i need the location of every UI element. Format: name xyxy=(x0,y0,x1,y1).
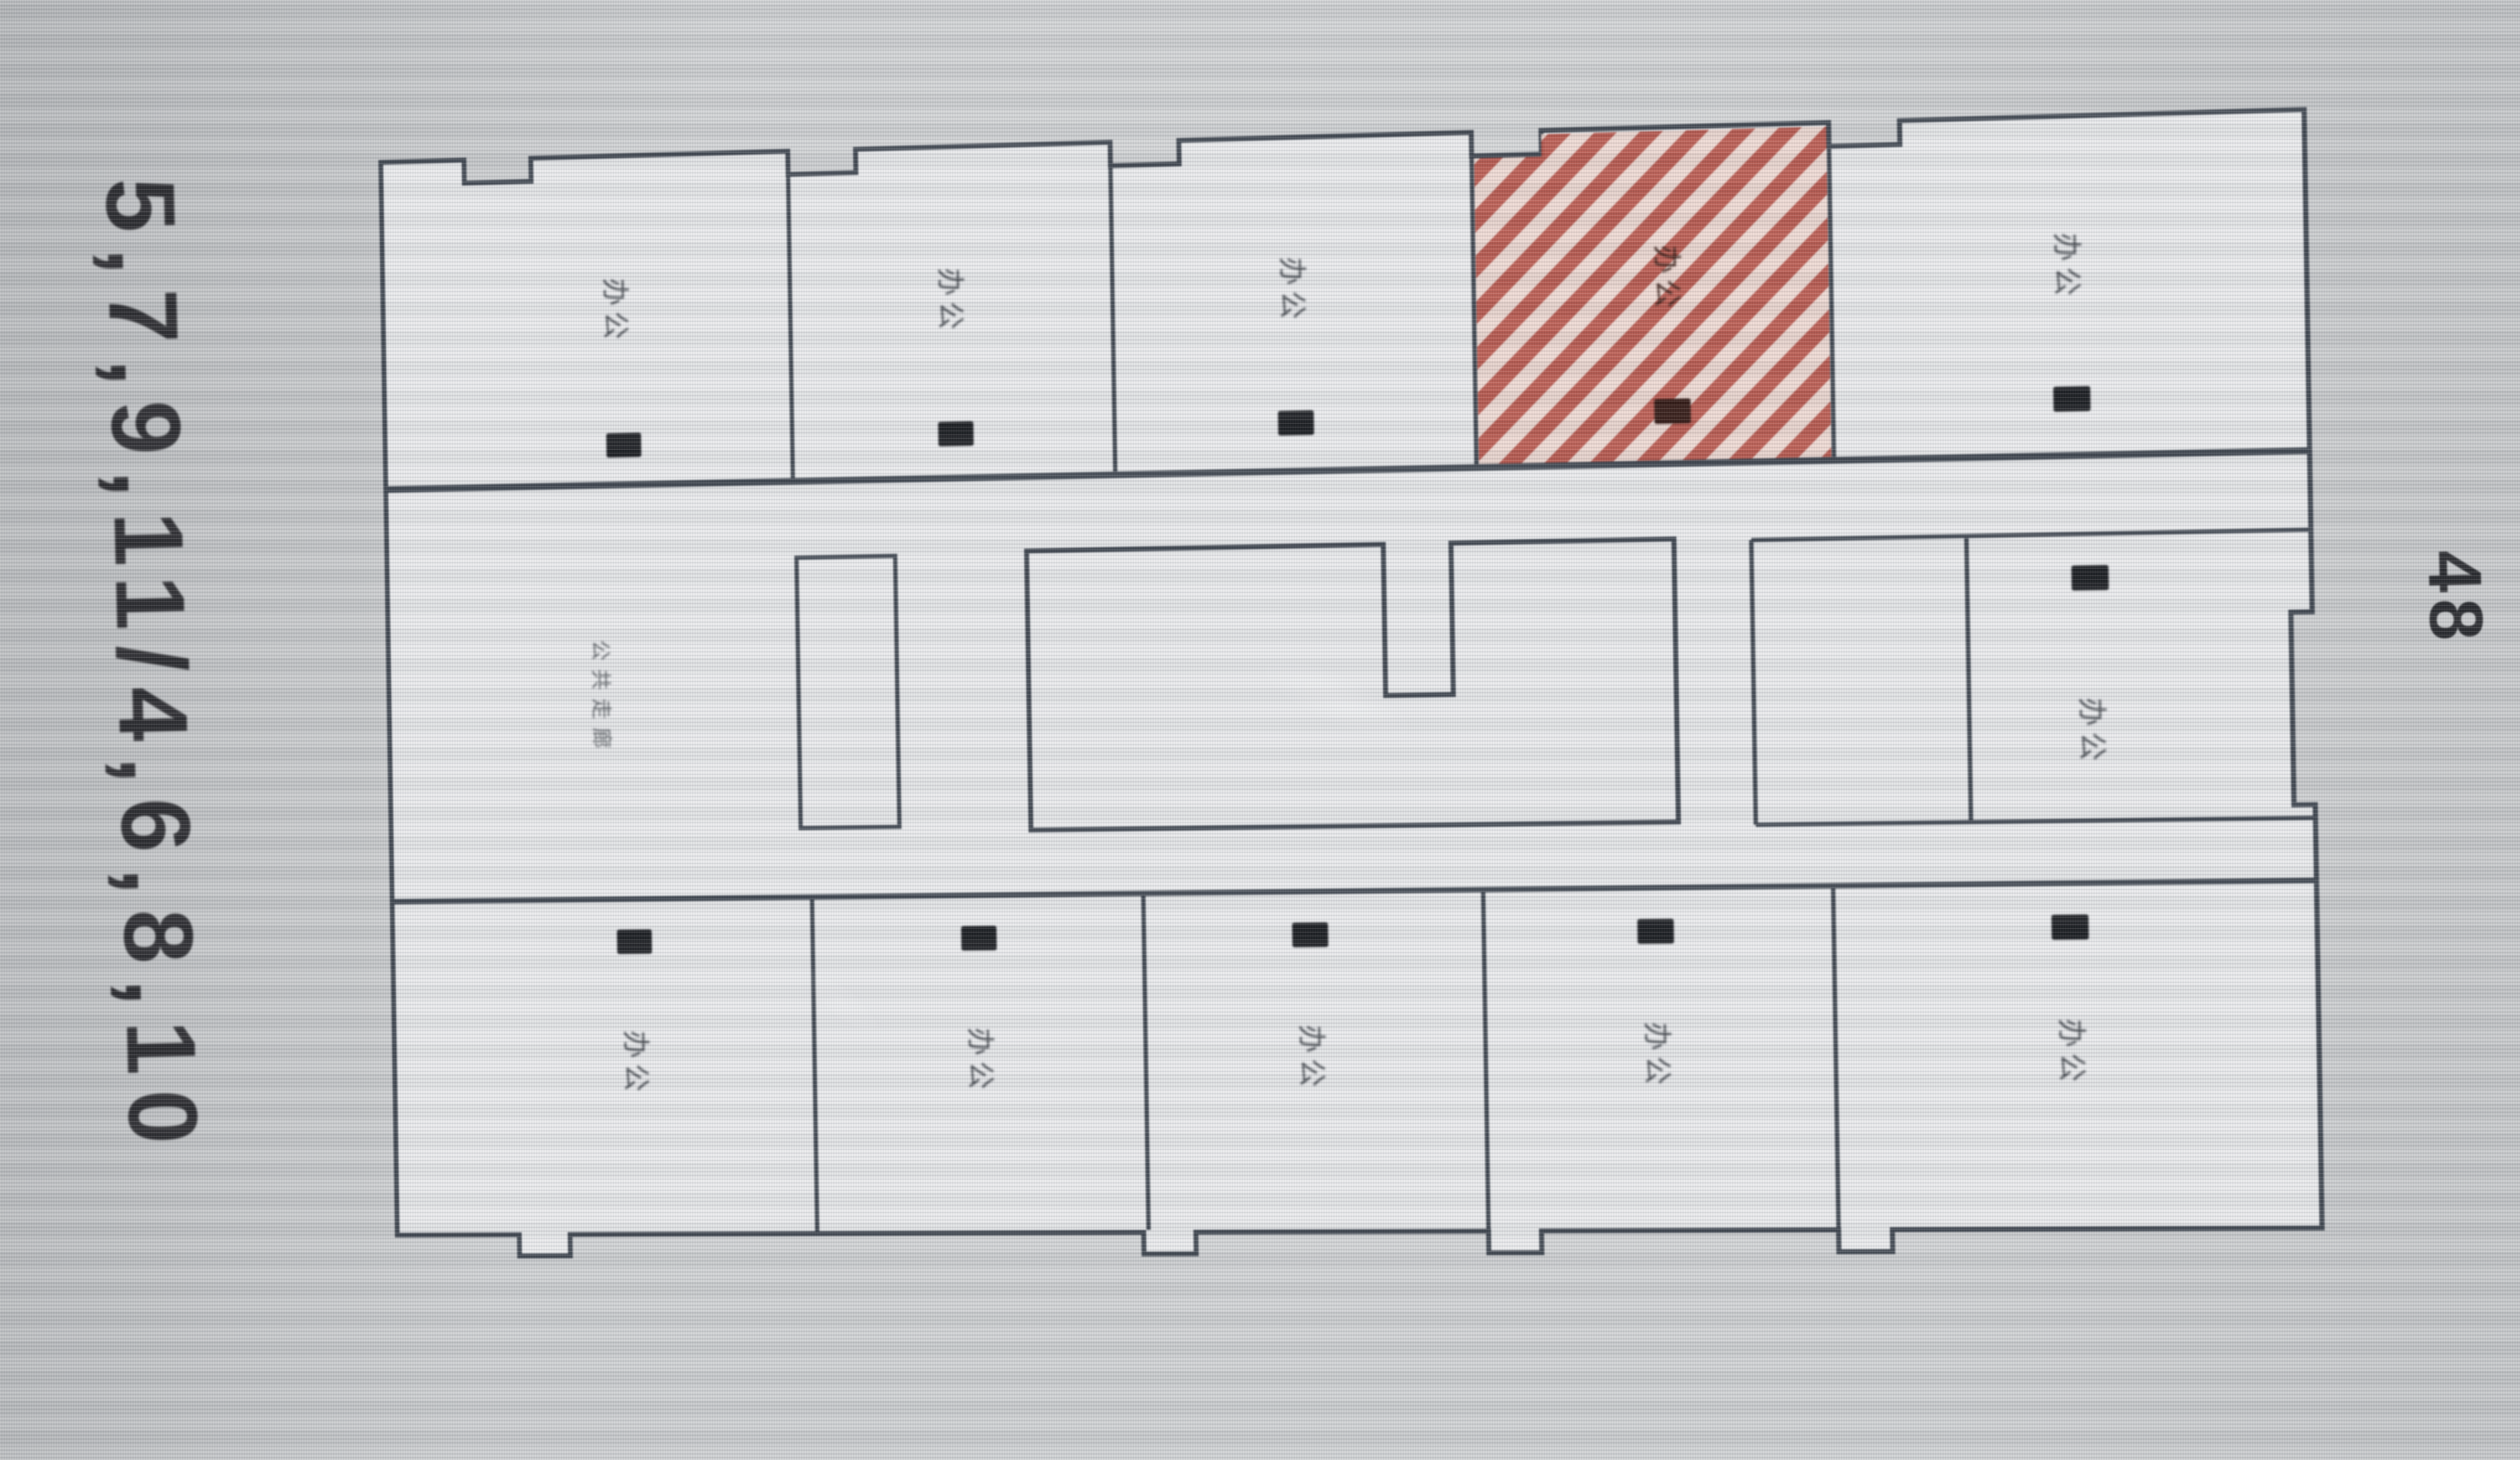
room-number-block xyxy=(606,433,641,458)
floor-plan: 公共走廊 办公 办公 办公 办公 办公 办公 办公 办公 办公 办公 办公 xyxy=(359,45,2358,1284)
room-label-top-2: 办公 xyxy=(933,255,968,348)
room-label-top-3: 办公 xyxy=(1275,244,1310,337)
room-number-block xyxy=(938,421,974,447)
room-label-bottom-5: 办公 xyxy=(2053,1006,2090,1100)
room-number-block xyxy=(2053,386,2090,412)
room-label-bottom-3: 办公 xyxy=(1294,1012,1330,1105)
room-number-block xyxy=(1637,918,1674,944)
room-label-top-5: 办公 xyxy=(2048,219,2085,314)
room-label-bottom-2: 办公 xyxy=(963,1015,998,1107)
room-label-bottom-4: 办公 xyxy=(1639,1009,1676,1102)
room-number-block xyxy=(1292,922,1328,948)
room-number-block xyxy=(617,930,652,954)
room-number-block xyxy=(2071,565,2109,591)
room-number-block xyxy=(2051,914,2089,939)
floor-outline xyxy=(381,110,2323,1256)
room-label-middle-1: 办公 xyxy=(2074,685,2111,779)
corridor-label: 公共走廊 xyxy=(586,628,615,769)
room-label-bottom-1: 办公 xyxy=(619,1017,654,1109)
room-label-top-1: 办公 xyxy=(598,265,633,357)
room-label-top-4-highlighted: 办公 xyxy=(1649,232,1686,326)
floor-number-label: 48 xyxy=(2410,498,2501,698)
room-number-block-highlighted xyxy=(1654,399,1691,425)
room-number-block xyxy=(961,926,997,951)
room-number-block xyxy=(1278,410,1314,436)
